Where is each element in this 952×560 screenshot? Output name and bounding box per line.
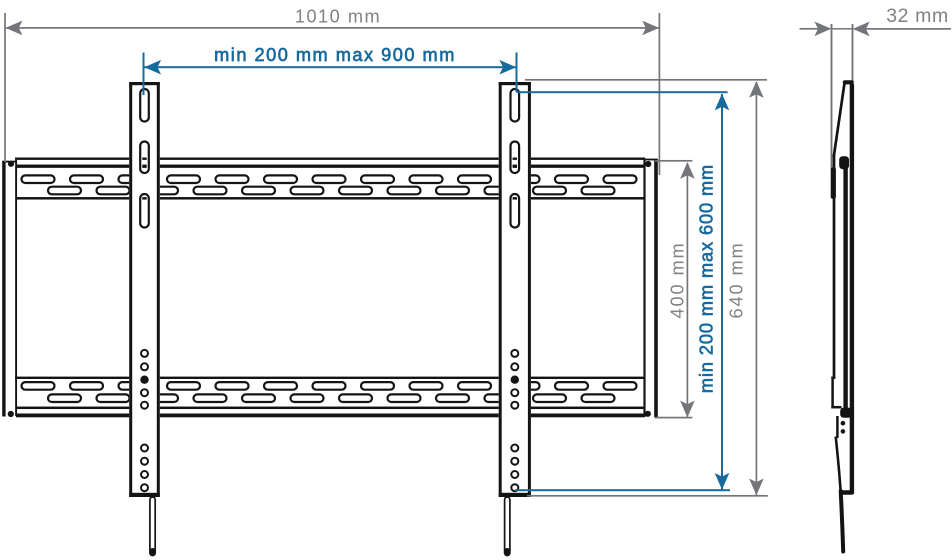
svg-text:32 mm: 32 mm [886,5,949,27]
svg-text:min 200 mm max 900 mm: min 200 mm max 900 mm [214,45,456,65]
svg-text:min 200 mm max 600 mm: min 200 mm max 600 mm [697,164,717,393]
svg-text:640 mm: 640 mm [726,241,746,318]
svg-text:400 mm: 400 mm [668,241,688,318]
svg-text:1010 mm: 1010 mm [295,7,381,27]
